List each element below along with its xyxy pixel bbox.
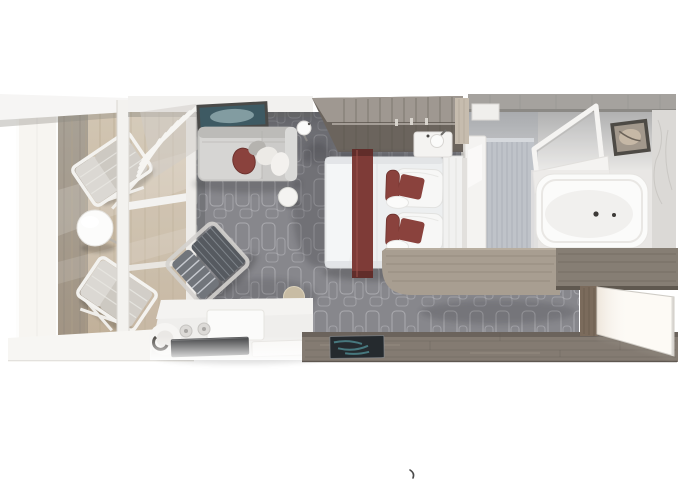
desk-fade	[150, 336, 313, 360]
nightstand	[414, 130, 452, 157]
glass-railing	[16, 104, 60, 350]
marble-vanity-wall	[482, 138, 534, 250]
wardrobe-side-panel	[455, 98, 469, 144]
bed-runner	[352, 149, 373, 278]
pillow-set	[385, 168, 443, 210]
vanity-desk	[149, 298, 325, 364]
tub-faucet	[593, 211, 598, 216]
runner-end	[352, 149, 373, 156]
runner-end	[352, 271, 373, 278]
bathroom-right-wall	[652, 110, 676, 262]
tub-drain	[612, 213, 616, 217]
sofa-armrest	[285, 127, 297, 181]
wall-sconce	[431, 135, 444, 148]
marble-panel	[482, 138, 534, 250]
tub-basin	[545, 190, 633, 238]
hanger	[395, 119, 398, 126]
living-artwork	[196, 101, 268, 131]
hall-floor-shadow	[420, 300, 576, 324]
railing-post	[16, 104, 19, 350]
hanger	[410, 118, 413, 125]
pillow-set	[385, 212, 443, 254]
sofa	[192, 127, 302, 193]
floorplan-frame	[0, 0, 680, 486]
table-highlight	[81, 216, 99, 228]
knob-center	[202, 327, 206, 331]
right-marble-wall	[652, 110, 676, 262]
sofa-backrest	[198, 127, 297, 138]
tv-console	[556, 248, 678, 290]
white-roll	[386, 196, 408, 209]
table-top	[77, 210, 113, 246]
corner-cabinet	[472, 104, 499, 120]
door-mat	[330, 336, 384, 359]
lamp-detail	[308, 123, 310, 125]
suite-floorplan-render	[0, 0, 680, 486]
curved-console	[382, 248, 560, 295]
bathtub	[531, 170, 662, 252]
door-frame-post	[117, 100, 129, 358]
bathroom-artwork	[610, 119, 651, 156]
hanger	[425, 118, 428, 125]
mat-body	[330, 336, 384, 359]
bed-edge-shade	[325, 157, 443, 164]
desk-box	[207, 310, 264, 340]
marble-panel-top	[482, 138, 534, 142]
sconce-detail	[427, 135, 430, 138]
ottoman-top	[279, 188, 298, 207]
knob-center	[184, 329, 188, 333]
